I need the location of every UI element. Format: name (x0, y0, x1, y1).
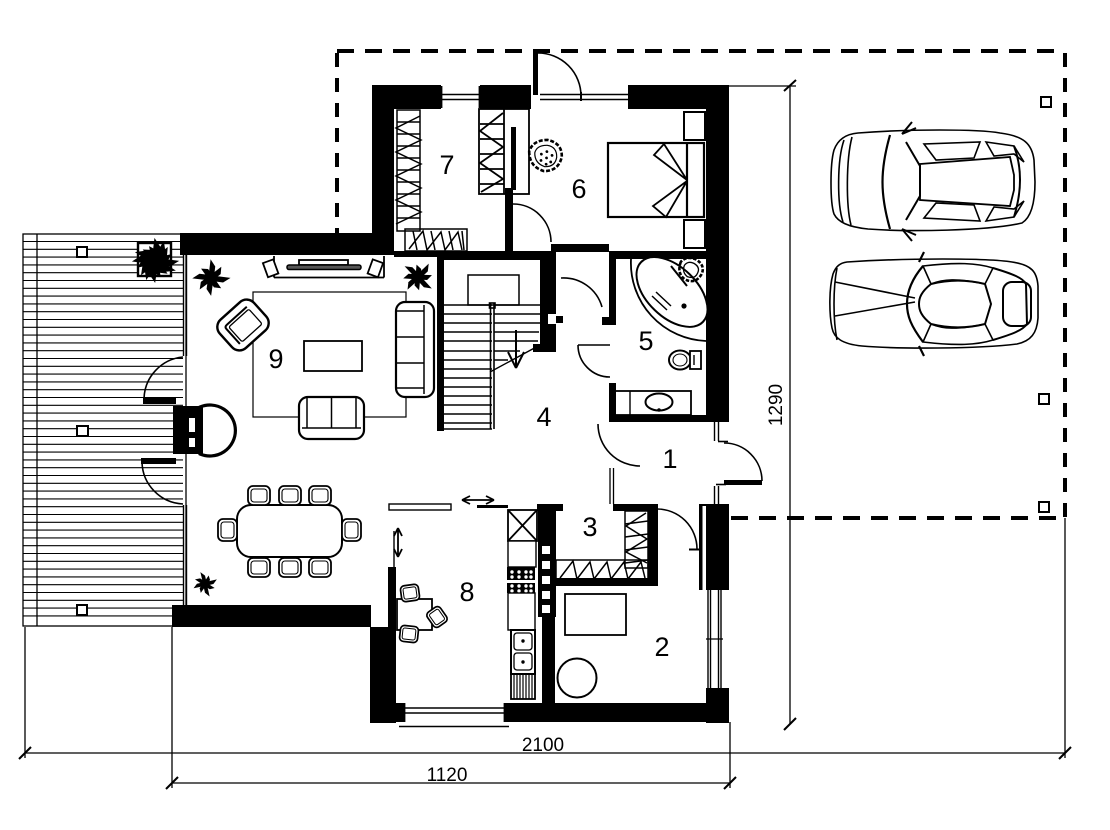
svg-text:1: 1 (662, 444, 677, 474)
svg-text:1120: 1120 (427, 765, 468, 786)
svg-text:6: 6 (571, 174, 586, 204)
svg-text:4: 4 (536, 402, 551, 432)
svg-text:3: 3 (582, 512, 597, 542)
svg-text:9: 9 (268, 344, 283, 374)
svg-text:2100: 2100 (522, 735, 564, 756)
svg-text:2: 2 (654, 632, 669, 662)
svg-text:1290: 1290 (766, 384, 787, 426)
svg-text:5: 5 (638, 326, 653, 356)
svg-text:8: 8 (459, 577, 474, 607)
svg-text:7: 7 (439, 150, 454, 180)
